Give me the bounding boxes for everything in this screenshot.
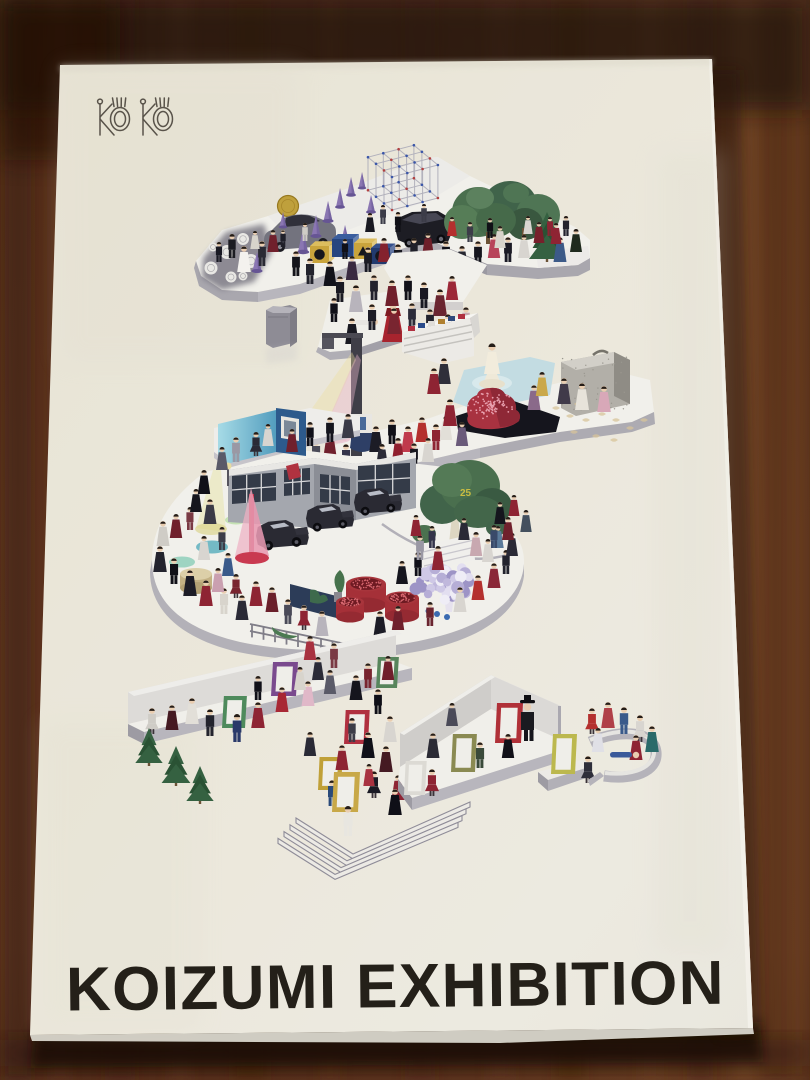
svg-text:KOIZUMI EXHIBITION: KOIZUMI EXHIBITION xyxy=(66,949,727,1025)
svg-text:25: 25 xyxy=(460,488,472,499)
